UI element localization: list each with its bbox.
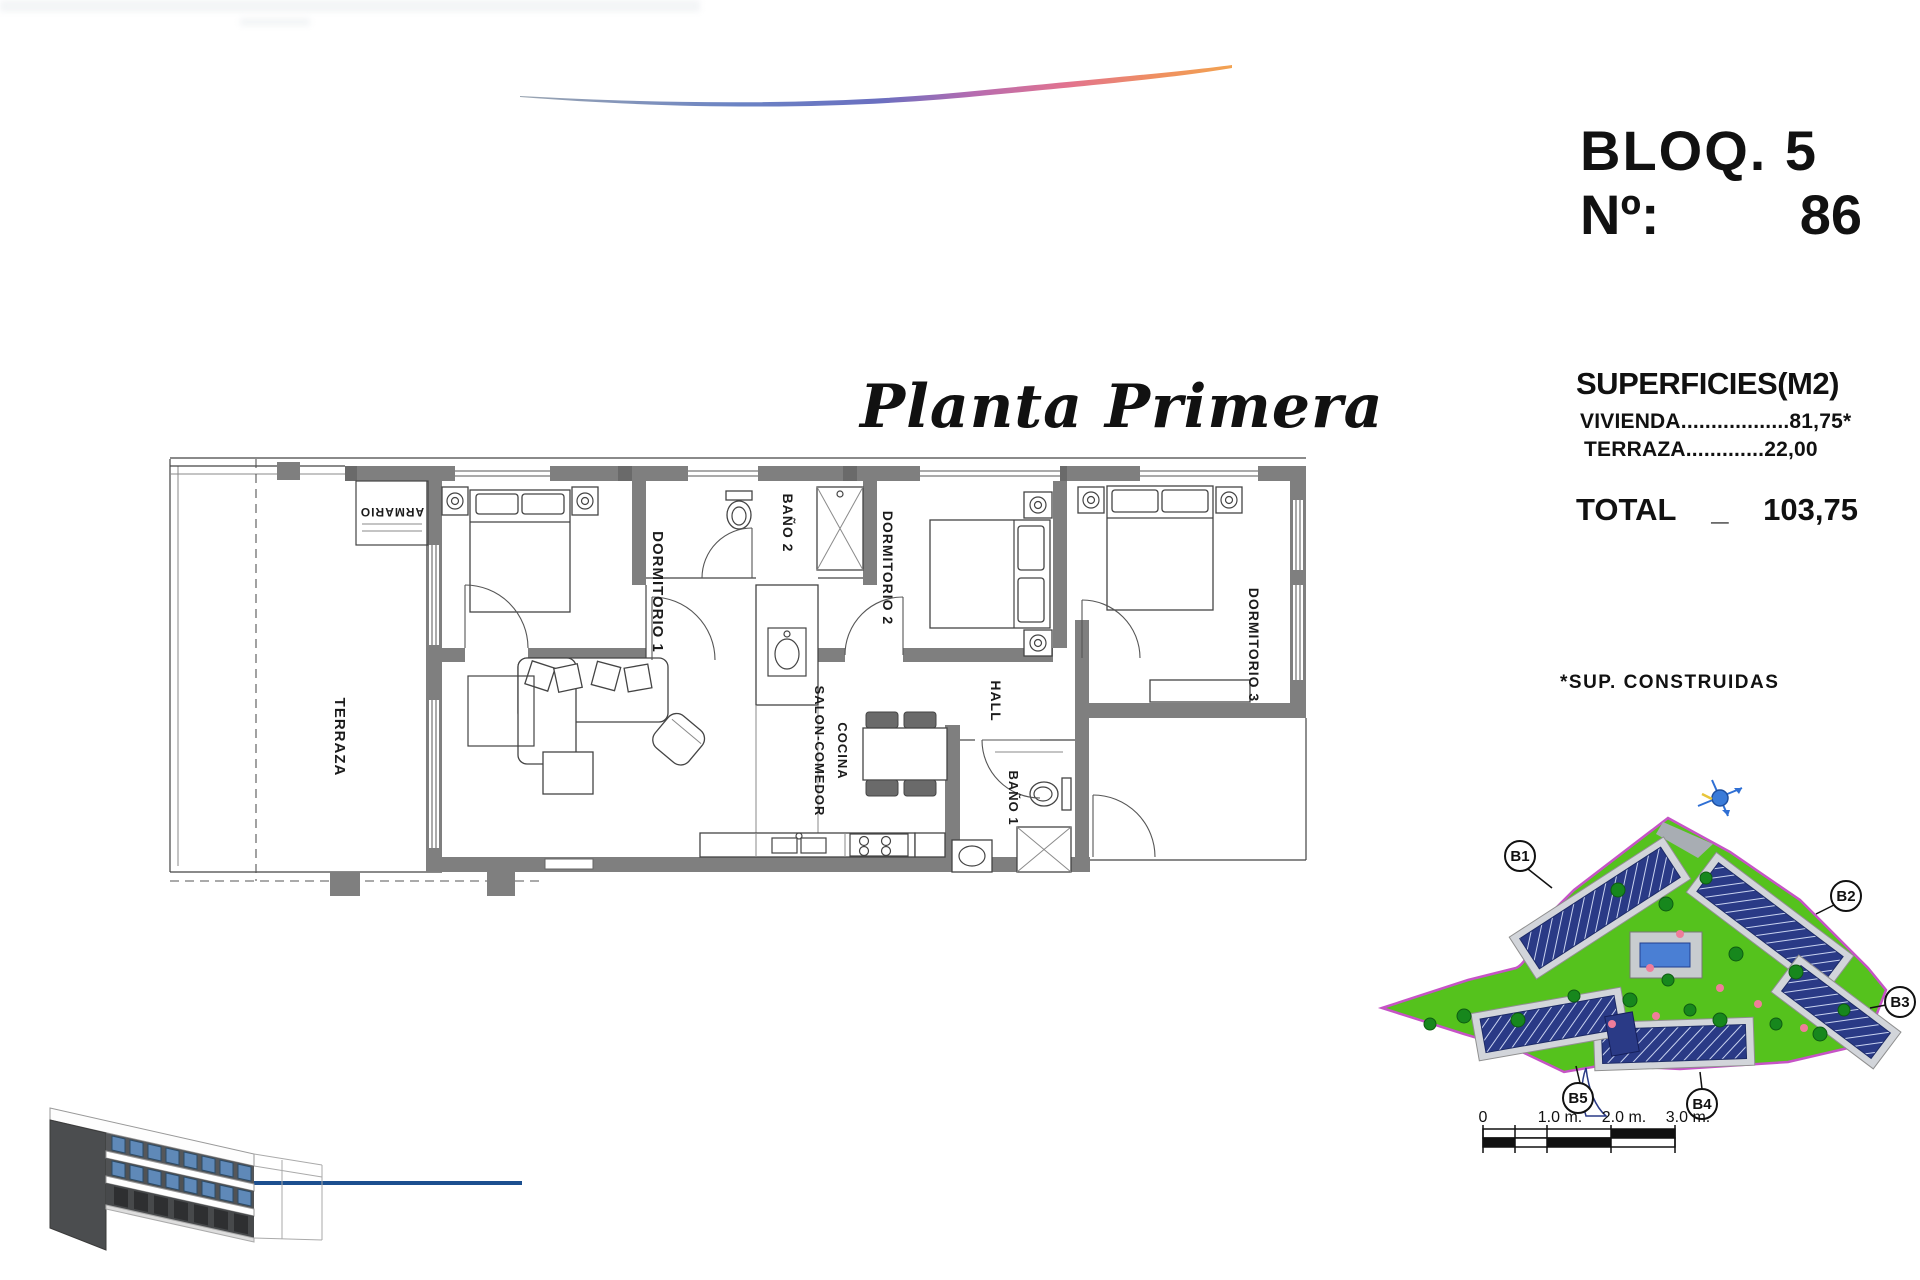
- room-label-dormitorio-1: DORMITORIO 1: [649, 531, 666, 653]
- room-label-dormitorio-2: DORMITORIO 2: [880, 511, 896, 625]
- scale-tick-2: 2.0 m.: [1602, 1109, 1646, 1126]
- scan-streak: [0, 0, 700, 12]
- shower-2: [817, 487, 863, 570]
- dining-set: [863, 712, 947, 796]
- unit-number-label: Nº:: [1580, 182, 1660, 247]
- scan-streak: [240, 18, 310, 26]
- coffee-table: [543, 752, 593, 794]
- render-horizon-line: [230, 1181, 522, 1185]
- fridge: [915, 833, 945, 857]
- site-label-b5: B5: [1568, 1090, 1587, 1107]
- site-label-b2: B2: [1836, 888, 1855, 905]
- scale-bar: 0 1.0 m. 2.0 m. 3.0 m.: [1472, 1106, 1782, 1166]
- shower-1: [1017, 827, 1071, 872]
- site-plan: B1 B2 B3 B4 B5: [1368, 772, 1918, 1132]
- terraza-dots: .............: [1686, 438, 1764, 461]
- site-label-b3: B3: [1890, 994, 1909, 1011]
- surface-total-row: TOTAL _ 103,75: [1576, 492, 1858, 528]
- plan-title: Planta Primera: [860, 372, 1320, 442]
- surface-row-terraza: TERRAZA.............22,00: [1584, 438, 1818, 462]
- scale-tick-0: 0: [1479, 1109, 1488, 1126]
- unit-number-row: Nº: 86: [1580, 182, 1862, 247]
- terraza-label: TERRAZA: [1584, 438, 1686, 461]
- room-label-armario: ARMARIO: [360, 505, 424, 519]
- compass-icon: [1698, 780, 1742, 816]
- total-separator: _: [1711, 492, 1728, 528]
- total-value: 103,75: [1763, 492, 1858, 528]
- sliding-door-window: [429, 700, 439, 848]
- bed-dormitorio-3: [1078, 486, 1250, 702]
- surfaces-footnote: *SUP. CONSTRUIDAS: [1560, 672, 1779, 694]
- dresser: [1150, 680, 1250, 702]
- floor-plan: TERRAZA ARMARIO DORMITORIO 1 BAÑO 2 DORM…: [160, 450, 1330, 915]
- room-label-terraza: TERRAZA: [331, 698, 348, 777]
- building-3d-render: [22, 1082, 532, 1277]
- vivienda-dots: ..................: [1681, 410, 1790, 433]
- render-wireframe: [254, 1154, 322, 1240]
- bed-dormitorio-2: [930, 492, 1052, 656]
- block-title: BLOQ. 5: [1580, 118, 1818, 183]
- unit-number-value: 86: [1800, 182, 1862, 247]
- vivienda-label: VIVIENDA: [1580, 410, 1681, 433]
- site-label-b1: B1: [1510, 848, 1529, 865]
- total-label: TOTAL: [1576, 492, 1676, 528]
- room-label-hall: HALL: [988, 680, 1004, 721]
- window: [1293, 500, 1303, 570]
- scale-tick-3: 3.0 m.: [1666, 1109, 1710, 1126]
- terraza-value: 22,00: [1764, 438, 1818, 461]
- sliding-door-window: [429, 545, 439, 645]
- room-label-dormitorio-3: DORMITORIO 3: [1246, 588, 1262, 702]
- room-label-salon-comedor: SALON-COMEDOR: [812, 686, 827, 817]
- window: [1140, 466, 1258, 481]
- window: [455, 466, 550, 481]
- window: [688, 466, 758, 481]
- gradient-wave-decoration: [460, 40, 1250, 120]
- room-label-bano-2: BAÑO 2: [780, 494, 797, 553]
- window: [920, 466, 1060, 481]
- room-label-cocina: COCINA: [835, 722, 850, 779]
- surfaces-title: SUPERFICIES(M2): [1576, 366, 1839, 402]
- window: [1293, 585, 1303, 680]
- vivienda-value: 81,75*: [1789, 410, 1851, 433]
- sofa-group: [468, 658, 709, 794]
- room-label-bano-1: BAÑO 1: [1006, 770, 1021, 825]
- site-pool: [1630, 932, 1702, 978]
- wall-niche: [545, 859, 593, 869]
- floorplan-sheet: BLOQ. 5 Nº: 86 SUPERFICIES(M2) VIVIENDA.…: [0, 0, 1920, 1280]
- surface-row-vivienda: VIVIENDA..................81,75*: [1580, 410, 1851, 434]
- render-building: [50, 1108, 322, 1250]
- scale-tick-1: 1.0 m.: [1538, 1109, 1582, 1126]
- vestibule-basin: [756, 585, 818, 855]
